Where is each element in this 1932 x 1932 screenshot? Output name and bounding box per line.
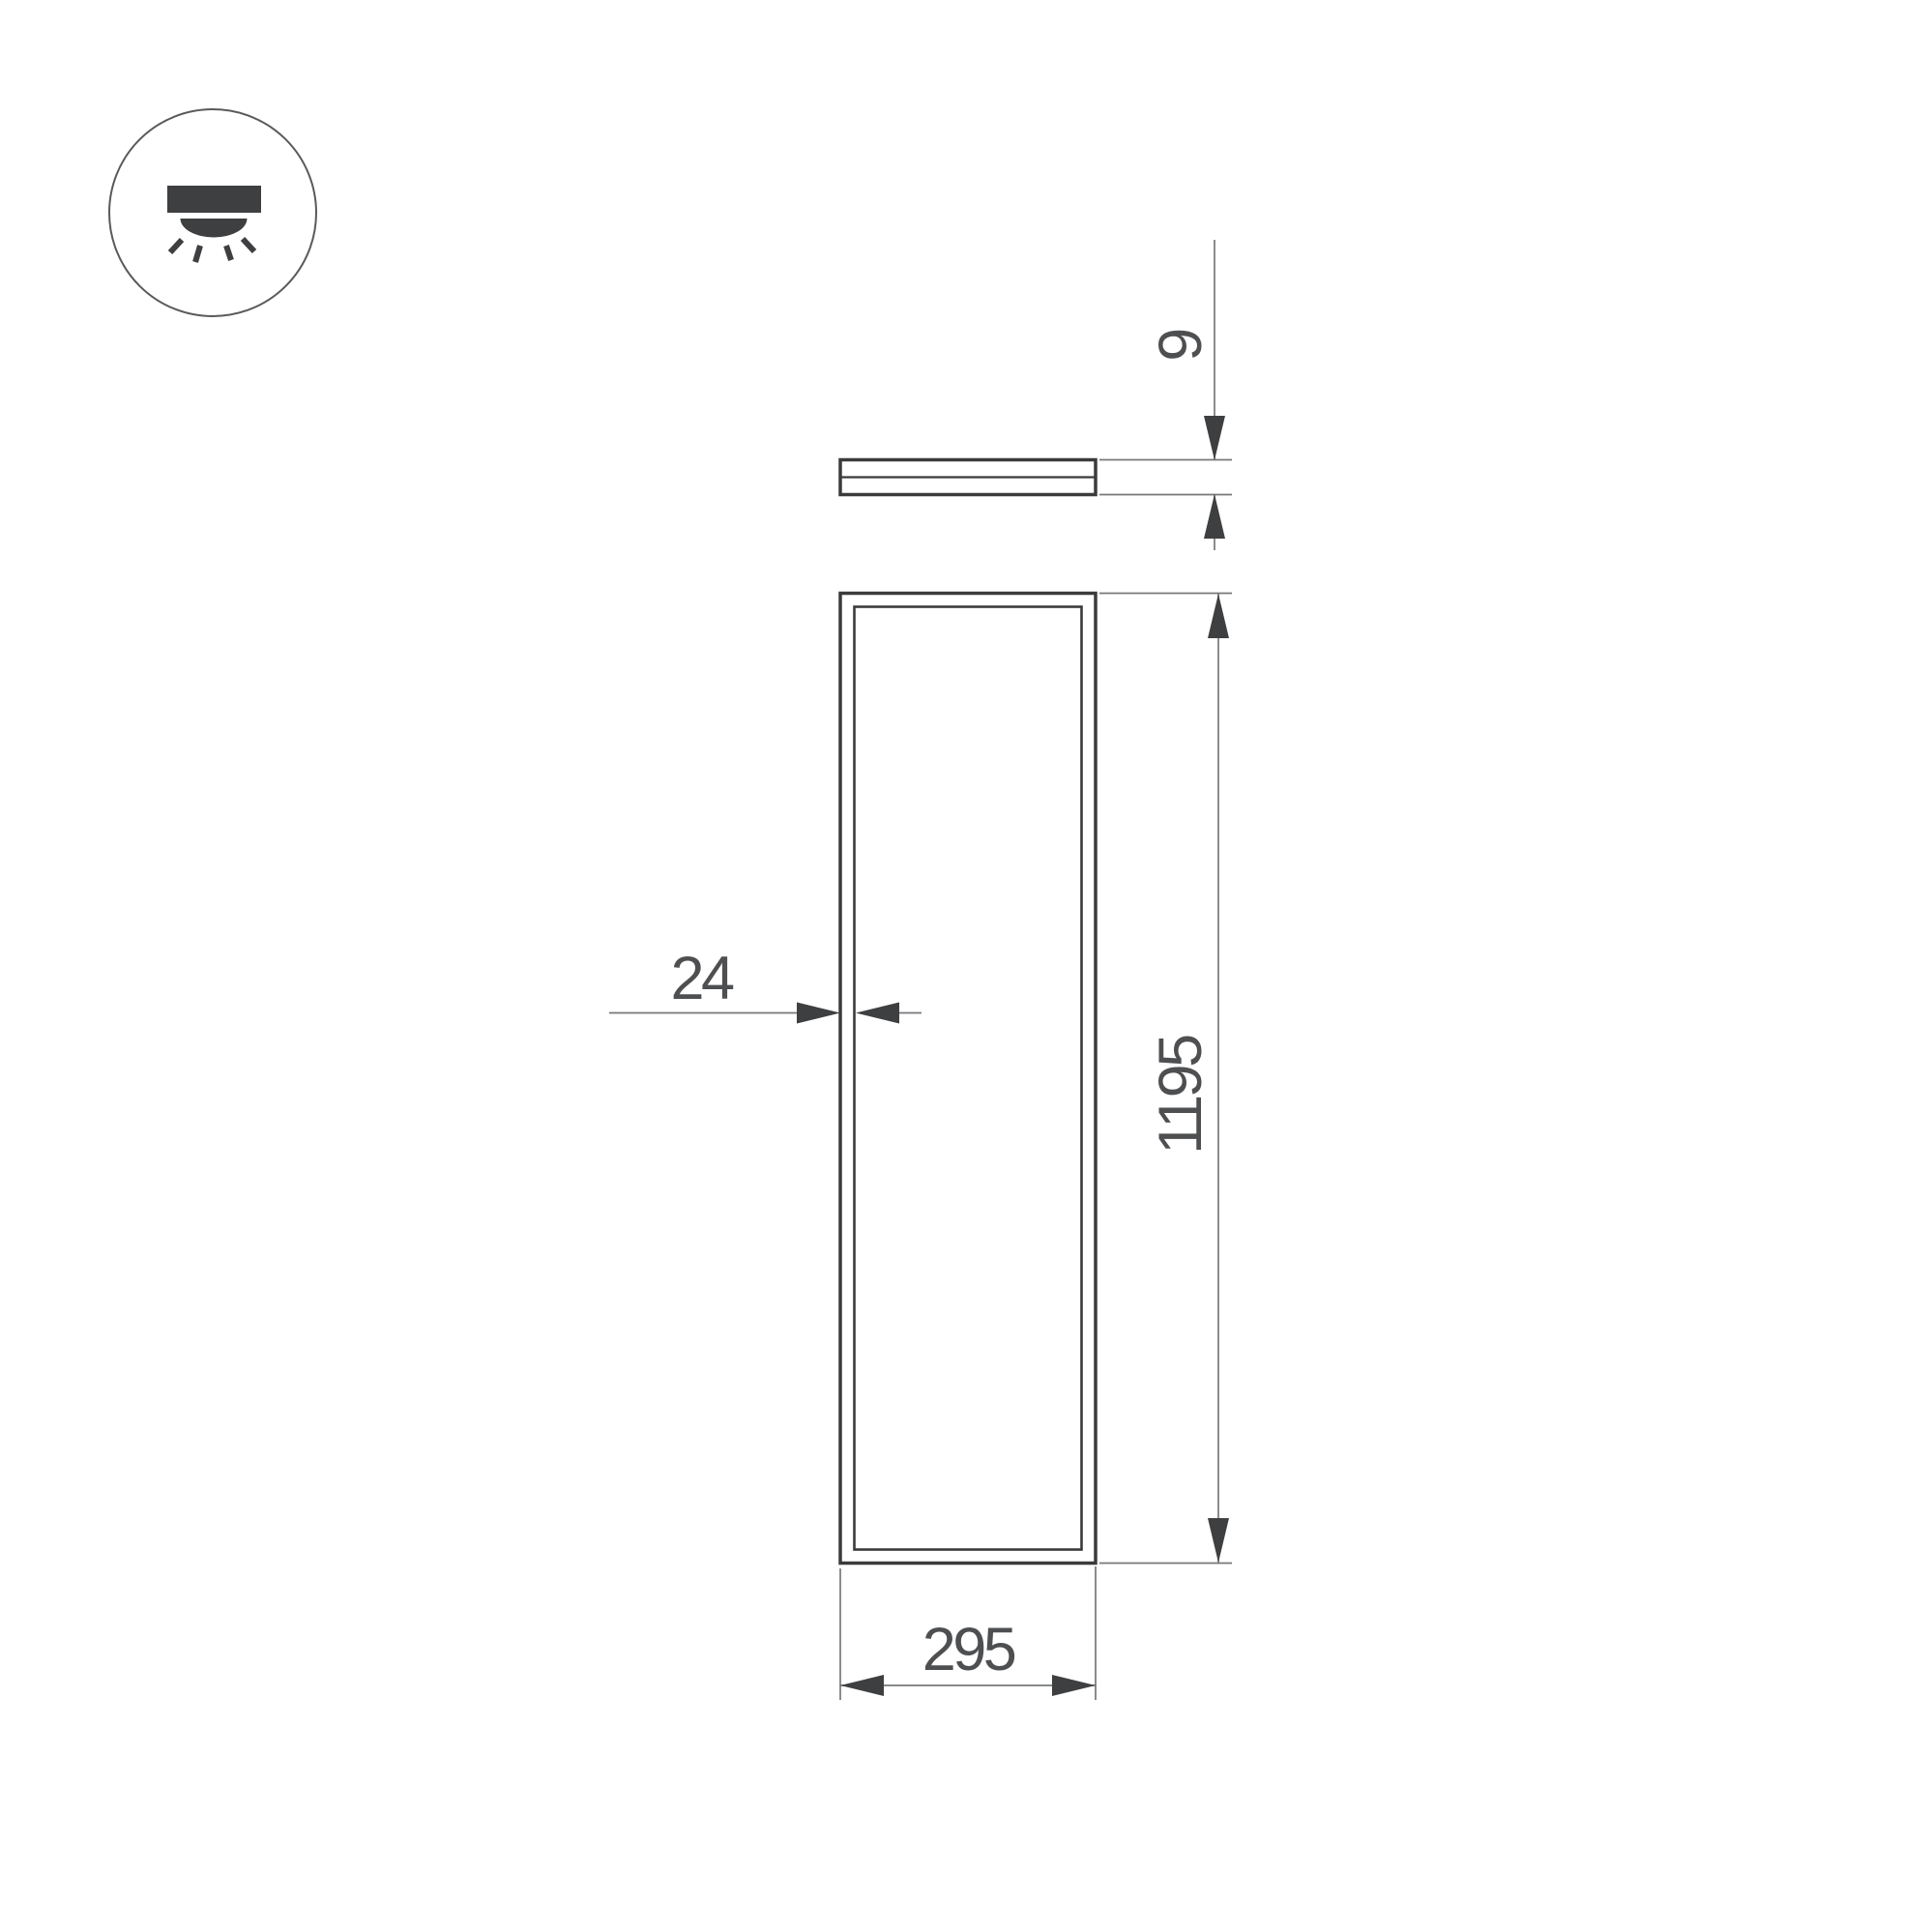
dimension-label-frame: 24 bbox=[670, 945, 734, 1012]
front-view-outline bbox=[840, 594, 1096, 1564]
icon-light-ray bbox=[243, 239, 254, 251]
arrow-right-icon bbox=[797, 1003, 840, 1024]
icon-light-ray bbox=[226, 246, 231, 260]
dimension-label-length: 1195 bbox=[1147, 1036, 1215, 1155]
dimension-thickness: 9 bbox=[1099, 240, 1232, 550]
front-view-inner-frame bbox=[855, 607, 1082, 1550]
front-view bbox=[840, 594, 1096, 1564]
icon-light-ray bbox=[170, 240, 182, 252]
downlight-icon bbox=[109, 109, 316, 316]
dimension-length: 1195 bbox=[1099, 594, 1232, 1564]
arrow-down-icon bbox=[1208, 1518, 1229, 1563]
icon-fixture-body bbox=[167, 186, 261, 213]
icon-light-dome bbox=[181, 219, 248, 238]
technical-drawing: 9 24 1195 295 bbox=[0, 0, 1932, 1932]
arrow-left-icon bbox=[856, 1003, 899, 1024]
dimension-label-width: 295 bbox=[922, 1616, 1015, 1683]
arrow-right-icon bbox=[1052, 1675, 1096, 1696]
drawing-canvas: 9 24 1195 295 bbox=[0, 0, 1932, 1932]
dimension-label-thickness: 9 bbox=[1147, 330, 1215, 362]
arrow-up-icon bbox=[1204, 494, 1225, 539]
dimension-frame: 24 bbox=[609, 945, 922, 1024]
dimension-width: 295 bbox=[840, 1566, 1096, 1700]
icon-light-ray bbox=[195, 246, 200, 262]
arrow-left-icon bbox=[840, 1675, 884, 1696]
arrow-up-icon bbox=[1208, 594, 1229, 638]
arrow-down-icon bbox=[1204, 416, 1225, 460]
side-view bbox=[840, 460, 1096, 495]
